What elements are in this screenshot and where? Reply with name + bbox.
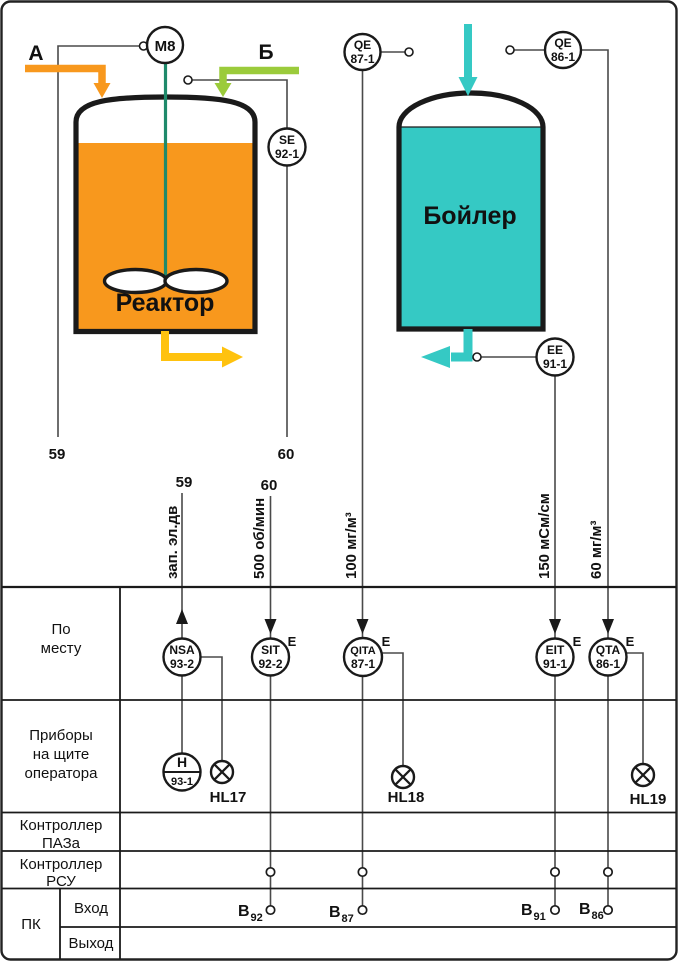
line-59-label-diagram: 59 bbox=[49, 446, 66, 463]
eit-sup-e: E bbox=[573, 634, 582, 649]
qta-sup-e: E bbox=[626, 634, 635, 649]
line-60-label-diagram: 60 bbox=[278, 446, 295, 463]
nsa-l2: 93-2 bbox=[170, 657, 194, 671]
stream-b-label: Б bbox=[258, 41, 273, 64]
sit-sup-e: E bbox=[288, 634, 297, 649]
instrument-nsa-93-2: NSA 93-2 bbox=[164, 639, 201, 676]
qita-sup-e: E bbox=[382, 634, 391, 649]
row-label-pc: ПК bbox=[21, 916, 41, 933]
dcs-node-91 bbox=[551, 868, 559, 876]
reactor-label: Реактор bbox=[116, 289, 215, 317]
qe87-l1: QE bbox=[354, 38, 371, 52]
signal-desc-91: 150 мСм/см bbox=[536, 493, 553, 579]
qita-l1: QITA bbox=[350, 645, 376, 657]
signal-desc-60: 500 об/мин bbox=[251, 498, 268, 579]
pc-terminal-87 bbox=[358, 906, 366, 914]
b91-sub: 91 bbox=[534, 911, 546, 923]
dcs-node-86 bbox=[604, 868, 612, 876]
pc-terminal-91 bbox=[551, 906, 559, 914]
qe86-l1: QE bbox=[554, 36, 571, 50]
eit-l2: 91-1 bbox=[543, 657, 567, 671]
qta-l2: 86-1 bbox=[596, 657, 620, 671]
instrument-qe-86-1: QE 86-1 bbox=[545, 32, 581, 68]
hl18-label: HL18 bbox=[388, 789, 425, 806]
hl17-label: HL17 bbox=[210, 789, 247, 806]
b86-base: B bbox=[579, 901, 591, 918]
eit-l1: EIT bbox=[546, 643, 565, 657]
b92-sub: 92 bbox=[251, 912, 263, 924]
b91-base: B bbox=[521, 902, 533, 919]
motor-m8-tag: М8 bbox=[155, 38, 176, 55]
se-l2: 92-1 bbox=[275, 147, 299, 161]
boiler-label: Бойлер bbox=[423, 202, 516, 230]
pid-scheme: Реактор А Б Бойлер М8 SE 92 bbox=[0, 0, 678, 961]
signal-desc-59: зап. эл.дв bbox=[164, 506, 181, 579]
line-59-label-signal: 59 bbox=[176, 474, 193, 491]
dcs-node-92 bbox=[266, 868, 274, 876]
scheme-canvas: Реактор А Б Бойлер М8 SE 92 bbox=[0, 0, 678, 961]
line-60-label-signal: 60 bbox=[261, 477, 278, 494]
row-label-esd-2: ПАЗа bbox=[42, 835, 81, 852]
instrument-qe-87-1: QE 87-1 bbox=[345, 34, 381, 70]
qe87-l2: 87-1 bbox=[350, 52, 374, 66]
row-label-dcs-2: РСУ bbox=[46, 873, 76, 890]
row-label-panel-2: на щите bbox=[33, 746, 90, 763]
instrument-ee-91-1: EE 91-1 bbox=[537, 339, 574, 376]
ee91-l2: 91-1 bbox=[543, 357, 567, 371]
b87-sub: 87 bbox=[342, 913, 354, 925]
se-l1: SE bbox=[279, 133, 295, 147]
h-l2: 93-1 bbox=[171, 776, 193, 788]
tap-dot-qe86 bbox=[506, 46, 514, 54]
row-label-pc-in: Вход bbox=[74, 900, 108, 917]
stream-a-label: А bbox=[28, 42, 43, 65]
qta-l1: QTA bbox=[596, 643, 621, 657]
sit-l1: SIT bbox=[261, 643, 280, 657]
hl19-label: HL19 bbox=[630, 791, 667, 808]
h-l1: H bbox=[177, 754, 187, 770]
row-label-local-1: По bbox=[51, 621, 70, 638]
row-label-pc-out: Выход bbox=[69, 935, 114, 952]
qita-l2: 87-1 bbox=[351, 657, 375, 671]
pc-terminal-86 bbox=[604, 906, 612, 914]
dcs-node-87 bbox=[358, 868, 366, 876]
row-label-dcs-1: Контроллер bbox=[20, 856, 103, 873]
row-label-local-2: месту bbox=[41, 640, 82, 657]
tap-dot-se bbox=[184, 76, 192, 84]
instrument-se-92-1: SE 92-1 bbox=[269, 129, 306, 166]
sit-l2: 92-2 bbox=[258, 657, 282, 671]
signal-desc-86: 60 мг/м³ bbox=[588, 521, 605, 579]
row-label-esd-1: Контроллер bbox=[20, 817, 103, 834]
row-label-panel-1: Приборы bbox=[29, 727, 93, 744]
qe86-l2: 86-1 bbox=[551, 50, 575, 64]
signal-desc-87: 100 мг/м³ bbox=[343, 512, 360, 579]
instrument-h-93-1: H 93-1 bbox=[164, 754, 201, 791]
ee91-l1: EE bbox=[547, 343, 563, 357]
b86-sub: 86 bbox=[592, 910, 604, 922]
tap-dot-qe87 bbox=[405, 48, 413, 56]
b92-base: B bbox=[238, 903, 250, 920]
motor-m8: М8 bbox=[147, 27, 183, 63]
nsa-l1: NSA bbox=[169, 643, 195, 657]
row-label-panel-3: оператора bbox=[25, 765, 99, 782]
b87-base: B bbox=[329, 904, 341, 921]
pc-terminal-92 bbox=[266, 906, 274, 914]
tap-dot-ee bbox=[473, 353, 481, 361]
